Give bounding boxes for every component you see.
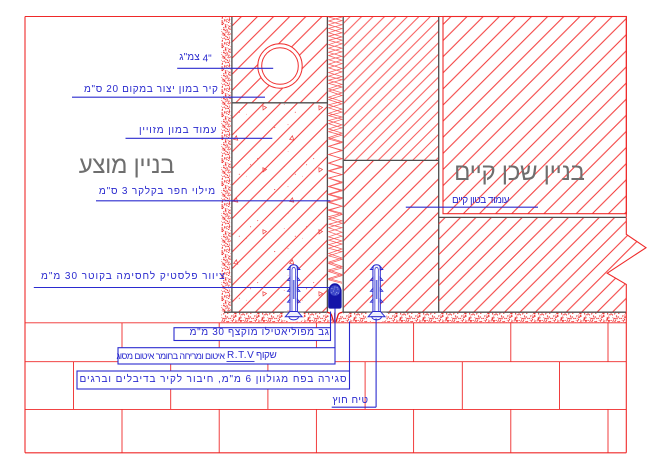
svg-text:4": 4"	[203, 54, 213, 65]
